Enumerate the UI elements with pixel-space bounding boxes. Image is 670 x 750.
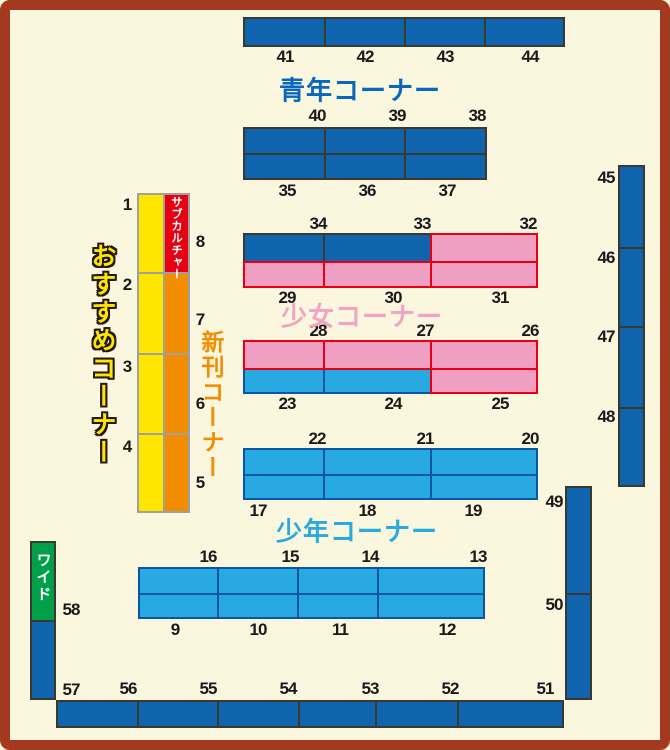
shelf-cell-42	[324, 17, 406, 47]
shelf-number-35: 35	[279, 181, 296, 201]
shelf-cell-11	[297, 593, 379, 619]
shelf-cell-38	[404, 127, 487, 155]
shelf-number-39: 39	[389, 106, 406, 126]
shelf-number-50: 50	[546, 595, 563, 615]
shelf-cell-37	[404, 153, 487, 180]
shelf-number-57: 57	[63, 680, 80, 700]
label-seinen-corner: 青年コーナー	[279, 71, 441, 108]
shelf-cell-15	[217, 567, 299, 595]
shelf-cell-45	[618, 165, 645, 249]
shelf-number-8: 8	[196, 232, 204, 252]
shelf-cell-1	[137, 193, 165, 274]
shelf-number-52: 52	[442, 679, 459, 699]
shelf-cell-7	[163, 272, 190, 355]
shelf-cell-2	[137, 272, 165, 355]
label-subculture: サブカルチャー	[168, 196, 184, 280]
shelf-number-34: 34	[310, 214, 327, 234]
shelf-cell-36	[324, 153, 406, 180]
shelf-cell-44	[484, 17, 565, 47]
shelf-cell-25	[430, 368, 538, 394]
shelf-number-16: 16	[200, 547, 217, 567]
shelf-cell-20	[430, 448, 538, 476]
shelf-cell-32	[430, 233, 538, 263]
shelf-number-37: 37	[439, 181, 456, 201]
shelf-number-10: 10	[250, 620, 267, 640]
shelf-number-20: 20	[522, 429, 539, 449]
shelf-number-12: 12	[439, 620, 456, 640]
shelf-cell-54	[217, 700, 300, 728]
shelf-cell-57	[30, 620, 56, 700]
shelf-number-26: 26	[522, 321, 539, 341]
shelf-number-15: 15	[282, 547, 299, 567]
shelf-cell-34	[243, 233, 325, 263]
shelf-cell-5	[163, 433, 190, 513]
shelf-cell-9	[138, 593, 219, 619]
shelf-cell-46	[618, 247, 645, 328]
shelf-number-53: 53	[362, 679, 379, 699]
shelf-number-51: 51	[537, 679, 554, 699]
shelf-cell-10	[217, 593, 299, 619]
shelf-number-45: 45	[598, 168, 615, 188]
shelf-cell-35	[243, 153, 326, 180]
shelf-number-48: 48	[598, 407, 615, 427]
shelf-cell-26	[430, 340, 538, 370]
shelf-cell-21	[323, 448, 432, 476]
shelf-number-47: 47	[598, 327, 615, 347]
shelf-number-9: 9	[171, 620, 179, 640]
shelf-cell-14	[297, 567, 379, 595]
shelf-cell-22	[243, 448, 325, 476]
shelf-number-44: 44	[522, 47, 539, 67]
label-recommended-corner: おすすめコーナー	[84, 243, 120, 467]
shelf-number-25: 25	[492, 394, 509, 414]
shelf-number-55: 55	[200, 679, 217, 699]
shelf-number-43: 43	[437, 47, 454, 67]
shelf-cell-16	[138, 567, 219, 595]
shelf-number-46: 46	[598, 248, 615, 268]
shelf-cell-50	[565, 593, 592, 700]
shelf-number-7: 7	[196, 310, 204, 330]
shelf-cell-29	[243, 261, 325, 288]
shelf-cell-17	[243, 474, 325, 500]
label-new-releases-corner: 新刊コーナー	[194, 330, 228, 480]
shelf-cell-31	[430, 261, 538, 288]
shelf-number-49: 49	[546, 492, 563, 512]
shelf-cell-33	[323, 233, 432, 263]
shelf-cell-23	[243, 368, 325, 394]
shelf-number-11: 11	[332, 620, 348, 640]
shelf-number-19: 19	[465, 501, 482, 521]
shelf-cell-30	[323, 261, 432, 288]
shelf-number-32: 32	[520, 214, 537, 234]
shelf-number-13: 13	[470, 547, 487, 567]
shelf-cell-56	[56, 700, 139, 728]
label-wide: ワイド	[33, 552, 54, 603]
shelf-number-42: 42	[357, 47, 374, 67]
shelf-cell-18	[323, 474, 432, 500]
shelf-cell-27	[323, 340, 432, 370]
shelf-cell-40	[243, 127, 326, 155]
shelf-cell-19	[430, 474, 538, 500]
shelf-number-17: 17	[250, 501, 267, 521]
shelf-cell-55	[137, 700, 219, 728]
shelf-cell-3	[137, 353, 165, 435]
shelf-number-2: 2	[123, 275, 131, 295]
shelf-cell-13	[377, 567, 485, 595]
store-floor-map: 41 42 43 44 40 39 38 35 36 37 34 33 32 2…	[0, 0, 670, 750]
shelf-cell-6	[163, 353, 190, 435]
shelf-number-22: 22	[309, 429, 326, 449]
shelf-number-54: 54	[280, 679, 297, 699]
shelf-cell-53	[298, 700, 377, 728]
shelf-number-4: 4	[123, 437, 131, 457]
shelf-number-1: 1	[123, 195, 131, 215]
shelf-number-31: 31	[492, 288, 509, 308]
shelf-cell-39	[324, 127, 406, 155]
shelf-cell-12	[377, 593, 485, 619]
shelf-number-24: 24	[385, 394, 402, 414]
shelf-number-14: 14	[362, 547, 379, 567]
shelf-number-40: 40	[309, 106, 326, 126]
label-shonen-corner: 少年コーナー	[276, 512, 438, 549]
shelf-cell-4	[137, 433, 165, 513]
shelf-number-3: 3	[123, 357, 131, 377]
shelf-cell-43	[404, 17, 486, 47]
shelf-cell-24	[323, 368, 432, 394]
shelf-number-56: 56	[120, 679, 137, 699]
shelf-cell-52	[375, 700, 459, 728]
shelf-number-58: 58	[63, 600, 80, 620]
shelf-cell-41	[243, 17, 326, 47]
shelf-cell-51	[457, 700, 564, 728]
label-shojo-corner: 少女コーナー	[281, 297, 443, 334]
shelf-number-38: 38	[469, 106, 486, 126]
shelf-cell-28	[243, 340, 325, 370]
shelf-number-33: 33	[414, 214, 431, 234]
shelf-number-21: 21	[417, 429, 434, 449]
shelf-cell-47	[618, 326, 645, 409]
shelf-number-23: 23	[279, 394, 296, 414]
shelf-number-41: 41	[277, 47, 294, 67]
shelf-cell-49	[565, 486, 592, 595]
shelf-cell-48	[618, 407, 645, 487]
shelf-number-36: 36	[359, 181, 376, 201]
